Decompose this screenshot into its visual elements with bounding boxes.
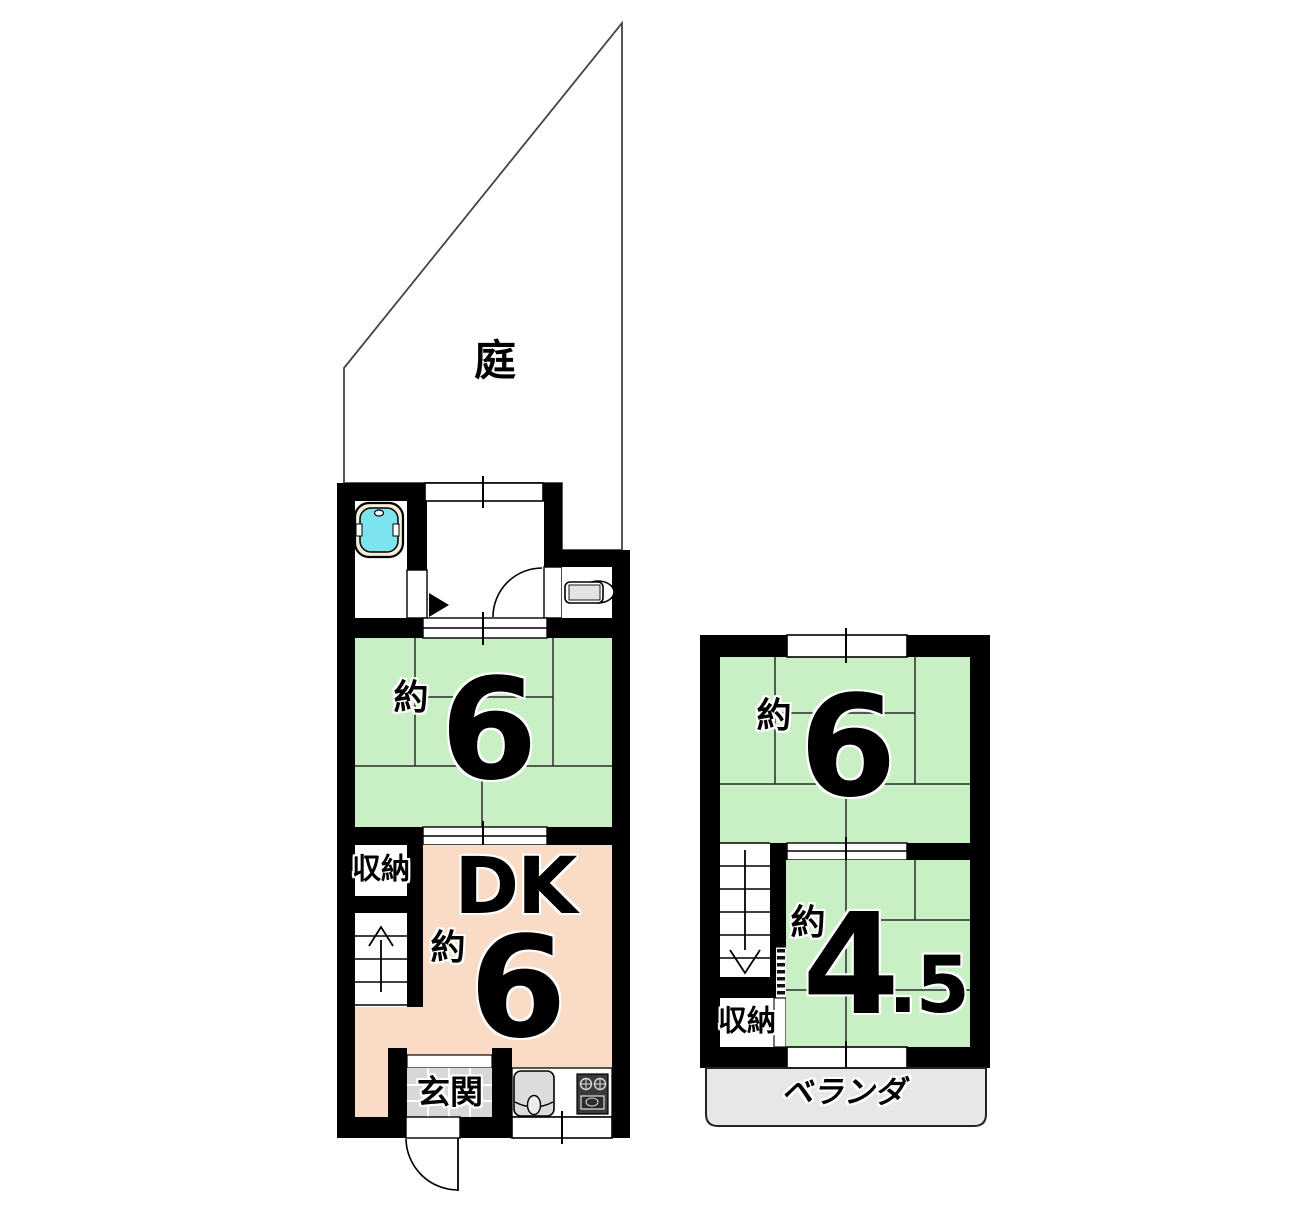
floor2-storage-label: 収納: [718, 1008, 776, 1037]
washroom: [427, 501, 544, 618]
entrance-door-swing-icon: [406, 1138, 458, 1191]
floor1-room6-approx: 約: [393, 681, 428, 716]
floor1-entrance-label: 玄関: [417, 1076, 483, 1109]
garden-area: [344, 23, 622, 550]
floor-plan-drawing: [0, 0, 1300, 1220]
kitchen-sink-icon: [514, 1071, 554, 1116]
floor2-stairs: [720, 843, 770, 977]
garden-label: 庭: [474, 340, 516, 382]
floor1-plan: [337, 476, 630, 1191]
stove-icon: [577, 1074, 608, 1114]
floor2-room6-approx: 約: [756, 699, 791, 734]
entrance-door-opening: [406, 1117, 460, 1138]
floor-plan-page: 庭 約 6 DK 約 6 収納 玄関 約 6 約 4 .5 収納 ベランダ: [0, 0, 1300, 1220]
stair-railing: [776, 947, 787, 998]
floor2-room45-size-main: 4: [802, 896, 897, 1036]
floor1-dk-size: 6: [469, 919, 564, 1059]
bathtub-icon: [355, 503, 403, 557]
floor1-room6-size: 6: [440, 661, 535, 801]
veranda-label: ベランダ: [781, 1077, 912, 1108]
floor2-room6-size: 6: [799, 678, 894, 818]
window-floor2-top: [787, 628, 907, 663]
floor1-storage-label: 収納: [352, 856, 410, 885]
toilet-icon: [565, 581, 614, 603]
floor2-room45-size-decimal: .5: [888, 947, 968, 1025]
floor1-dk-approx: 約: [430, 931, 465, 966]
floor1-stairs: [355, 913, 407, 1007]
